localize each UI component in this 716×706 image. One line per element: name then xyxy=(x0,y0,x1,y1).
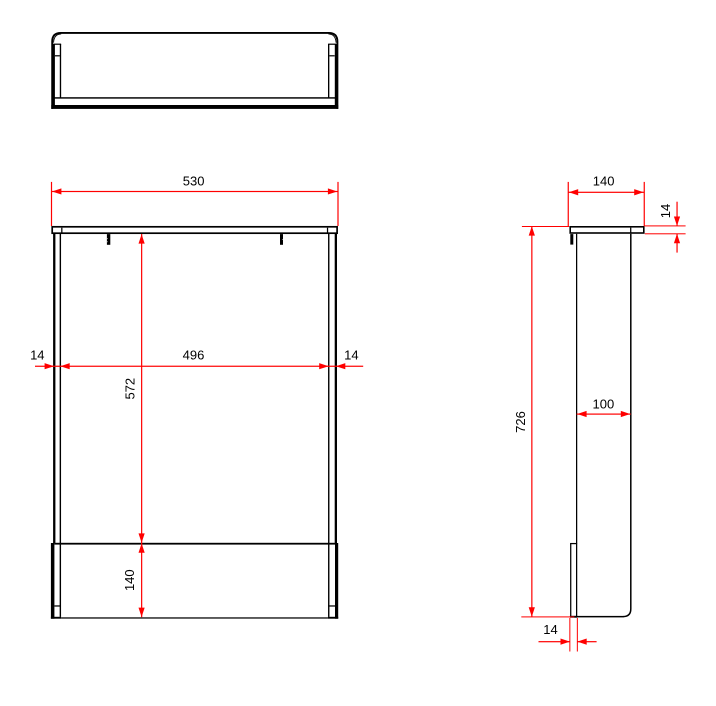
svg-text:572: 572 xyxy=(123,378,138,400)
svg-text:14: 14 xyxy=(30,347,44,362)
svg-text:100: 100 xyxy=(593,397,615,412)
svg-text:140: 140 xyxy=(593,174,615,189)
svg-text:726: 726 xyxy=(513,411,528,433)
svg-text:14: 14 xyxy=(344,347,358,362)
svg-text:14: 14 xyxy=(658,204,673,218)
svg-text:14: 14 xyxy=(543,622,557,637)
svg-text:496: 496 xyxy=(183,347,205,362)
svg-text:530: 530 xyxy=(183,174,205,189)
svg-text:140: 140 xyxy=(122,569,137,591)
